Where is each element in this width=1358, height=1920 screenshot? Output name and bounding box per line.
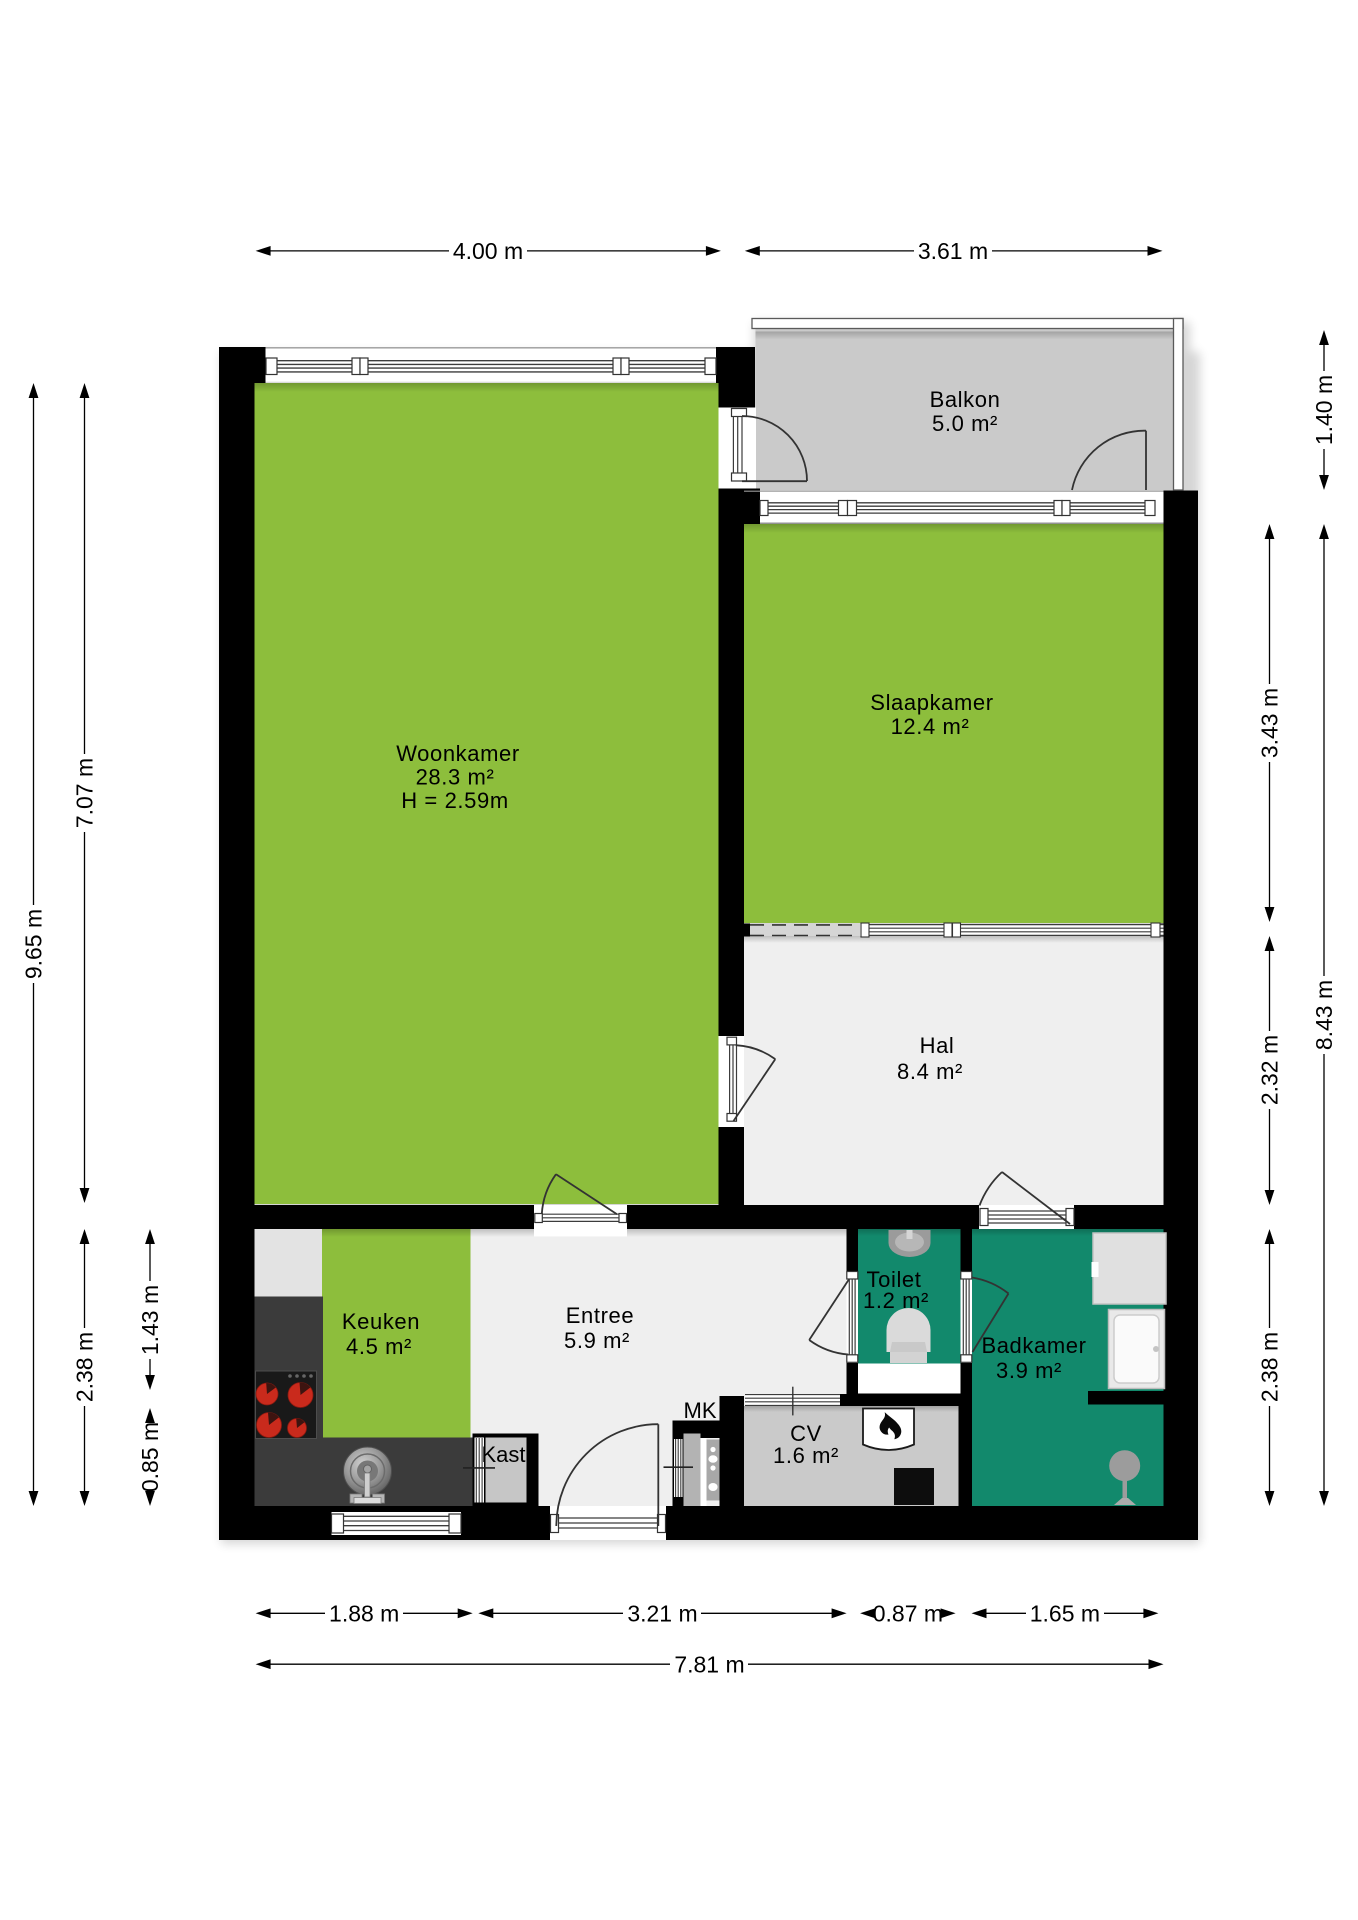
svg-text:3.9 m²: 3.9 m² [996, 1358, 1062, 1383]
svg-text:9.65 m: 9.65 m [21, 909, 47, 979]
svg-text:12.4 m²: 12.4 m² [891, 714, 970, 739]
svg-text:2.32 m: 2.32 m [1257, 1035, 1283, 1105]
svg-text:3.61 m: 3.61 m [918, 238, 988, 264]
svg-text:Slaapkamer: Slaapkamer [870, 690, 993, 715]
svg-text:1.43 m: 1.43 m [137, 1285, 163, 1355]
svg-text:Balkon: Balkon [930, 387, 1001, 412]
svg-text:1.88 m: 1.88 m [329, 1600, 399, 1626]
svg-text:8.4 m²: 8.4 m² [897, 1059, 963, 1084]
svg-text:3.21 m: 3.21 m [627, 1600, 697, 1626]
svg-text:28.3 m²: 28.3 m² [416, 765, 495, 790]
svg-text:MK: MK [684, 1398, 717, 1423]
svg-text:1.65 m: 1.65 m [1030, 1600, 1100, 1626]
svg-text:0.87 m: 0.87 m [873, 1600, 943, 1626]
svg-text:5.0 m²: 5.0 m² [932, 411, 998, 436]
svg-text:7.07 m: 7.07 m [72, 758, 98, 828]
svg-text:4.5 m²: 4.5 m² [346, 1334, 412, 1359]
svg-text:Badkamer: Badkamer [981, 1333, 1086, 1358]
svg-text:1.40 m: 1.40 m [1311, 375, 1337, 445]
svg-text:4.00 m: 4.00 m [453, 238, 523, 264]
svg-text:1.2 m²: 1.2 m² [863, 1288, 929, 1313]
svg-text:2.38 m: 2.38 m [1257, 1332, 1283, 1402]
svg-text:Entree: Entree [566, 1303, 634, 1328]
svg-text:Hal: Hal [920, 1033, 955, 1058]
svg-text:Keuken: Keuken [342, 1309, 420, 1334]
svg-text:2.38 m: 2.38 m [72, 1332, 98, 1402]
svg-text:Woonkamer: Woonkamer [396, 741, 520, 766]
svg-text:Kast: Kast [481, 1442, 525, 1467]
svg-text:H = 2.59m: H = 2.59m [401, 788, 509, 813]
svg-text:7.81 m: 7.81 m [674, 1651, 744, 1677]
svg-text:1.6 m²: 1.6 m² [773, 1443, 839, 1468]
svg-text:3.43 m: 3.43 m [1257, 688, 1283, 758]
svg-text:0.85 m: 0.85 m [137, 1422, 163, 1492]
svg-text:5.9 m²: 5.9 m² [564, 1328, 630, 1353]
svg-text:8.43 m: 8.43 m [1311, 980, 1337, 1050]
